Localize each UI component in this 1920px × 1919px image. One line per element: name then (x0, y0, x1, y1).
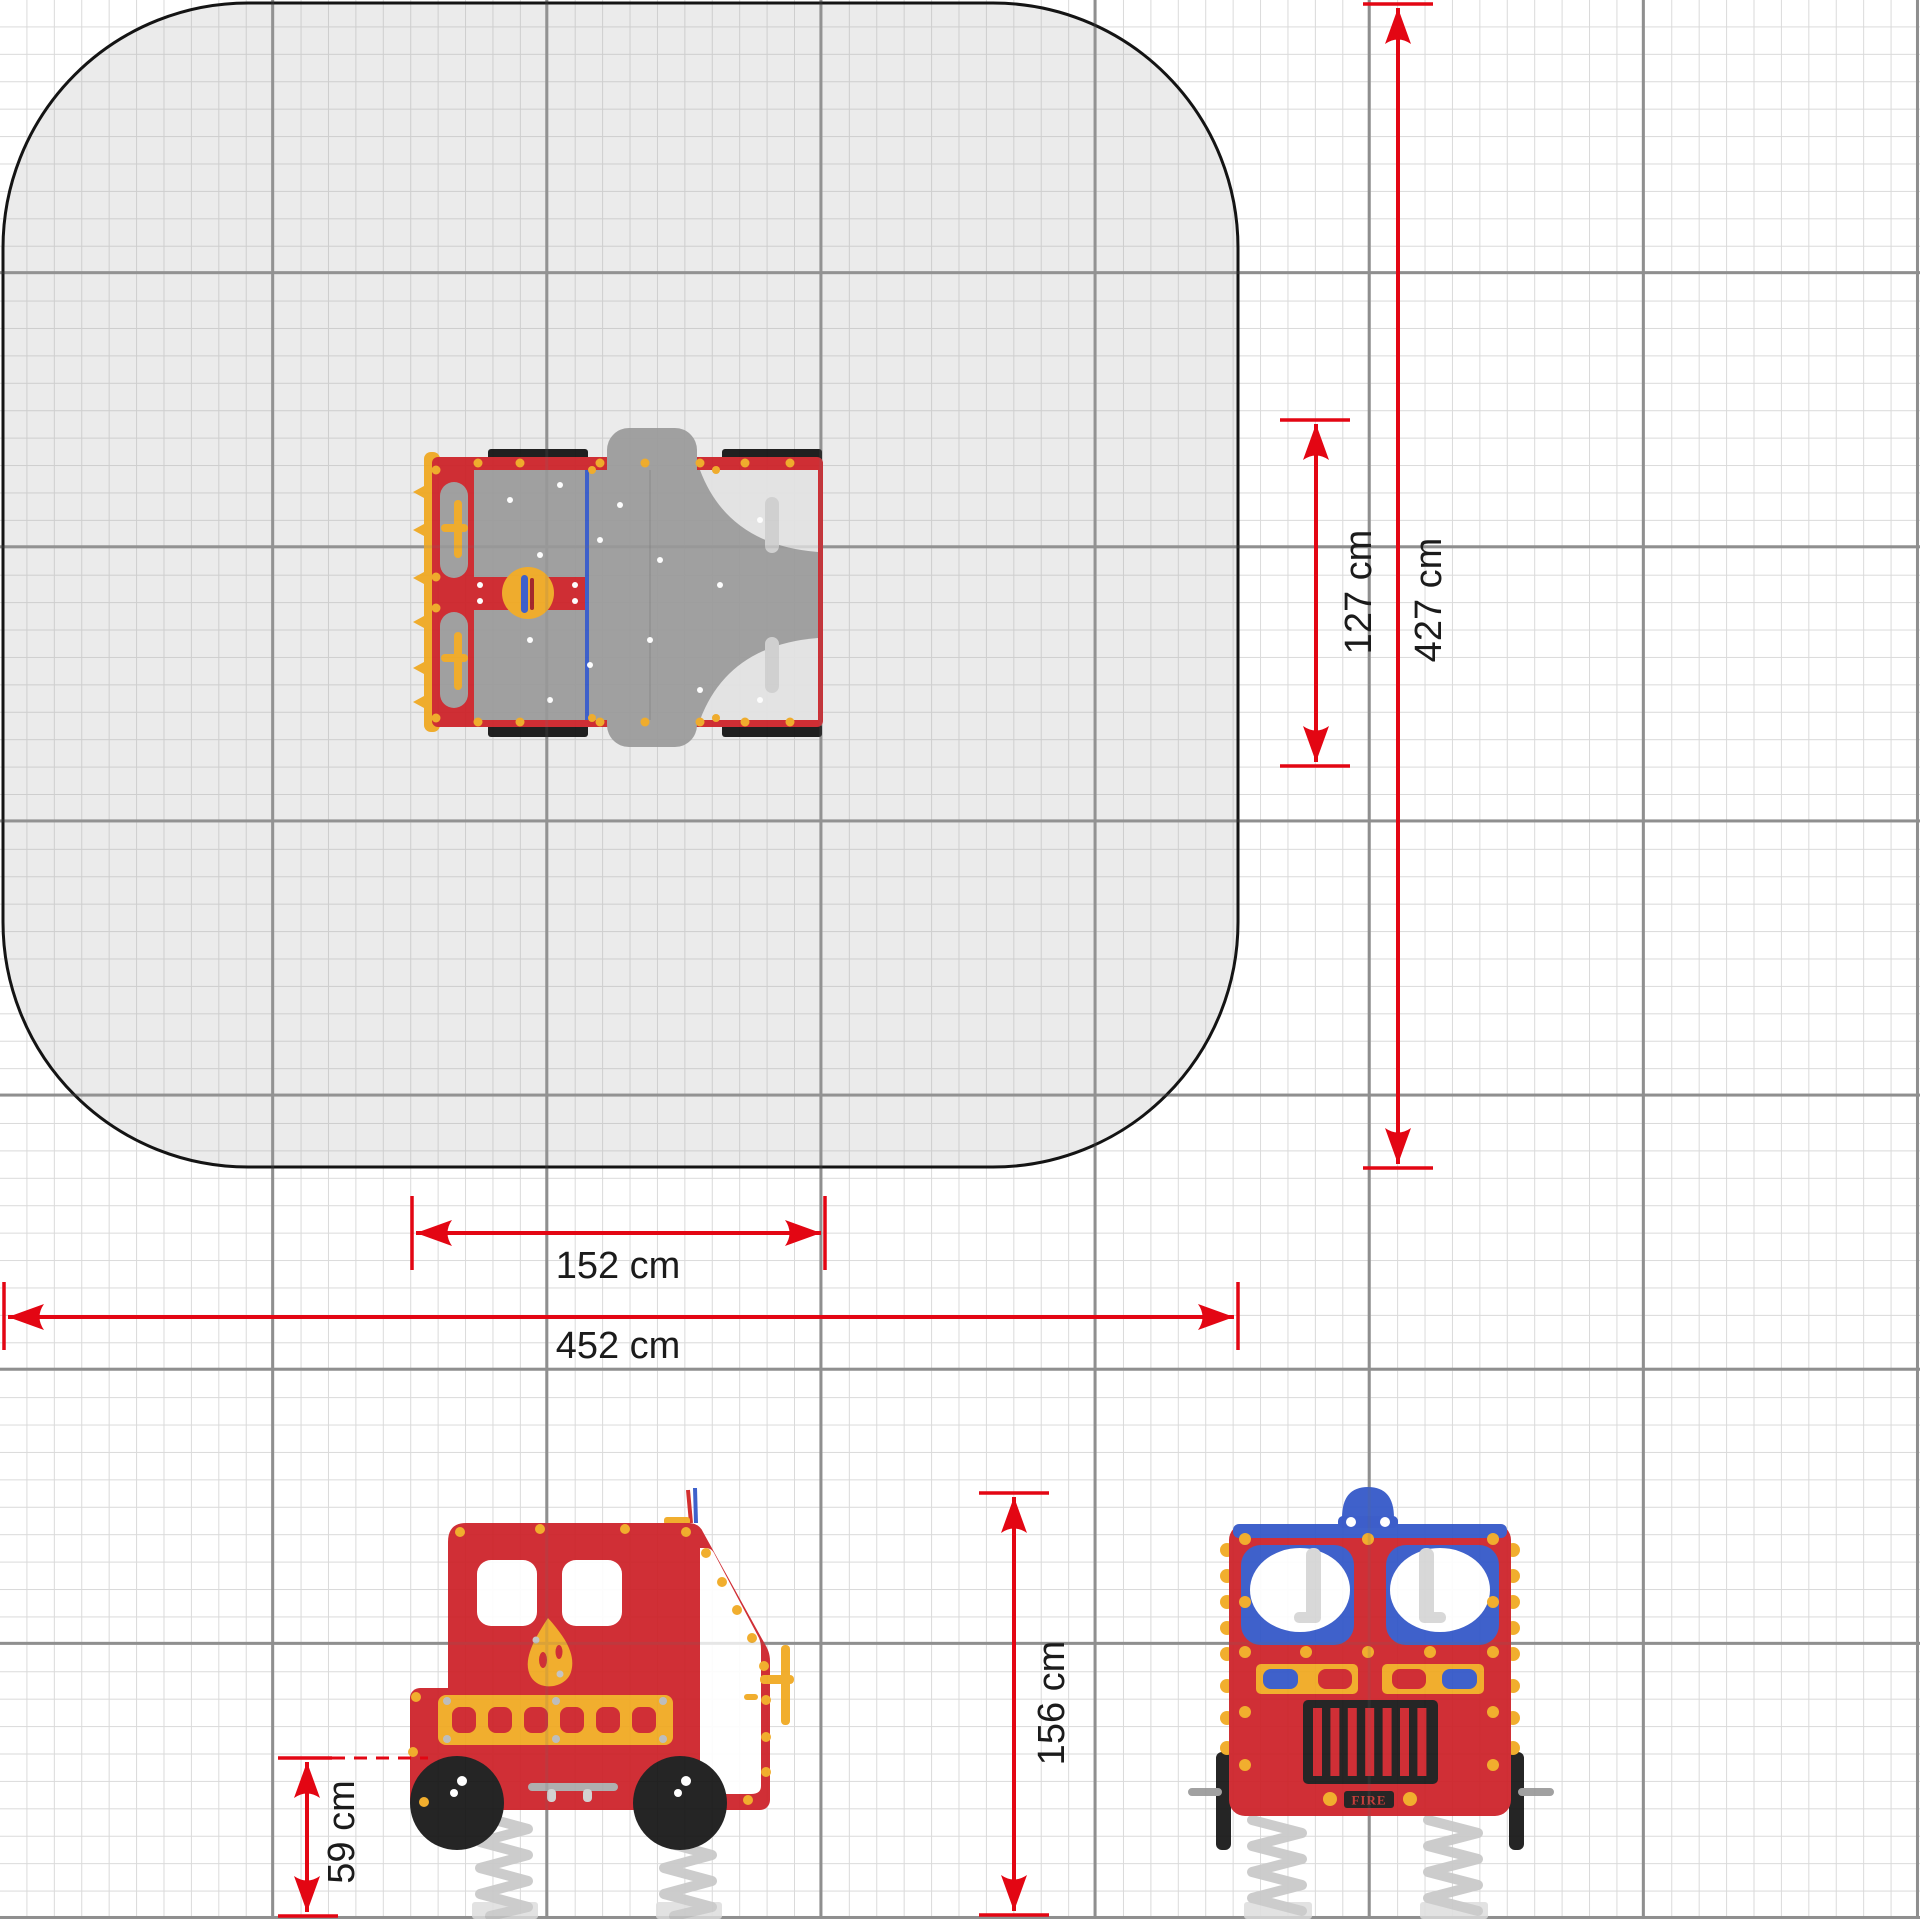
dimension-label-equipment-depth: 127 cm (1340, 530, 1378, 655)
dimension-label-safety-zone-width: 452 cm (556, 1327, 681, 1365)
dimension-label-equipment-width: 152 cm (556, 1247, 681, 1285)
drawing-canvas: FIRE (0, 0, 1920, 1919)
dimension-label-seat-height: 59 cm (323, 1780, 361, 1883)
technical-drawing: FIRE (0, 0, 1920, 1919)
dimension-label-safety-zone-depth: 427 cm (1410, 538, 1448, 663)
dimension-label-overall-height: 156 cm (1033, 1641, 1071, 1766)
grid-overlay (0, 0, 1920, 1919)
